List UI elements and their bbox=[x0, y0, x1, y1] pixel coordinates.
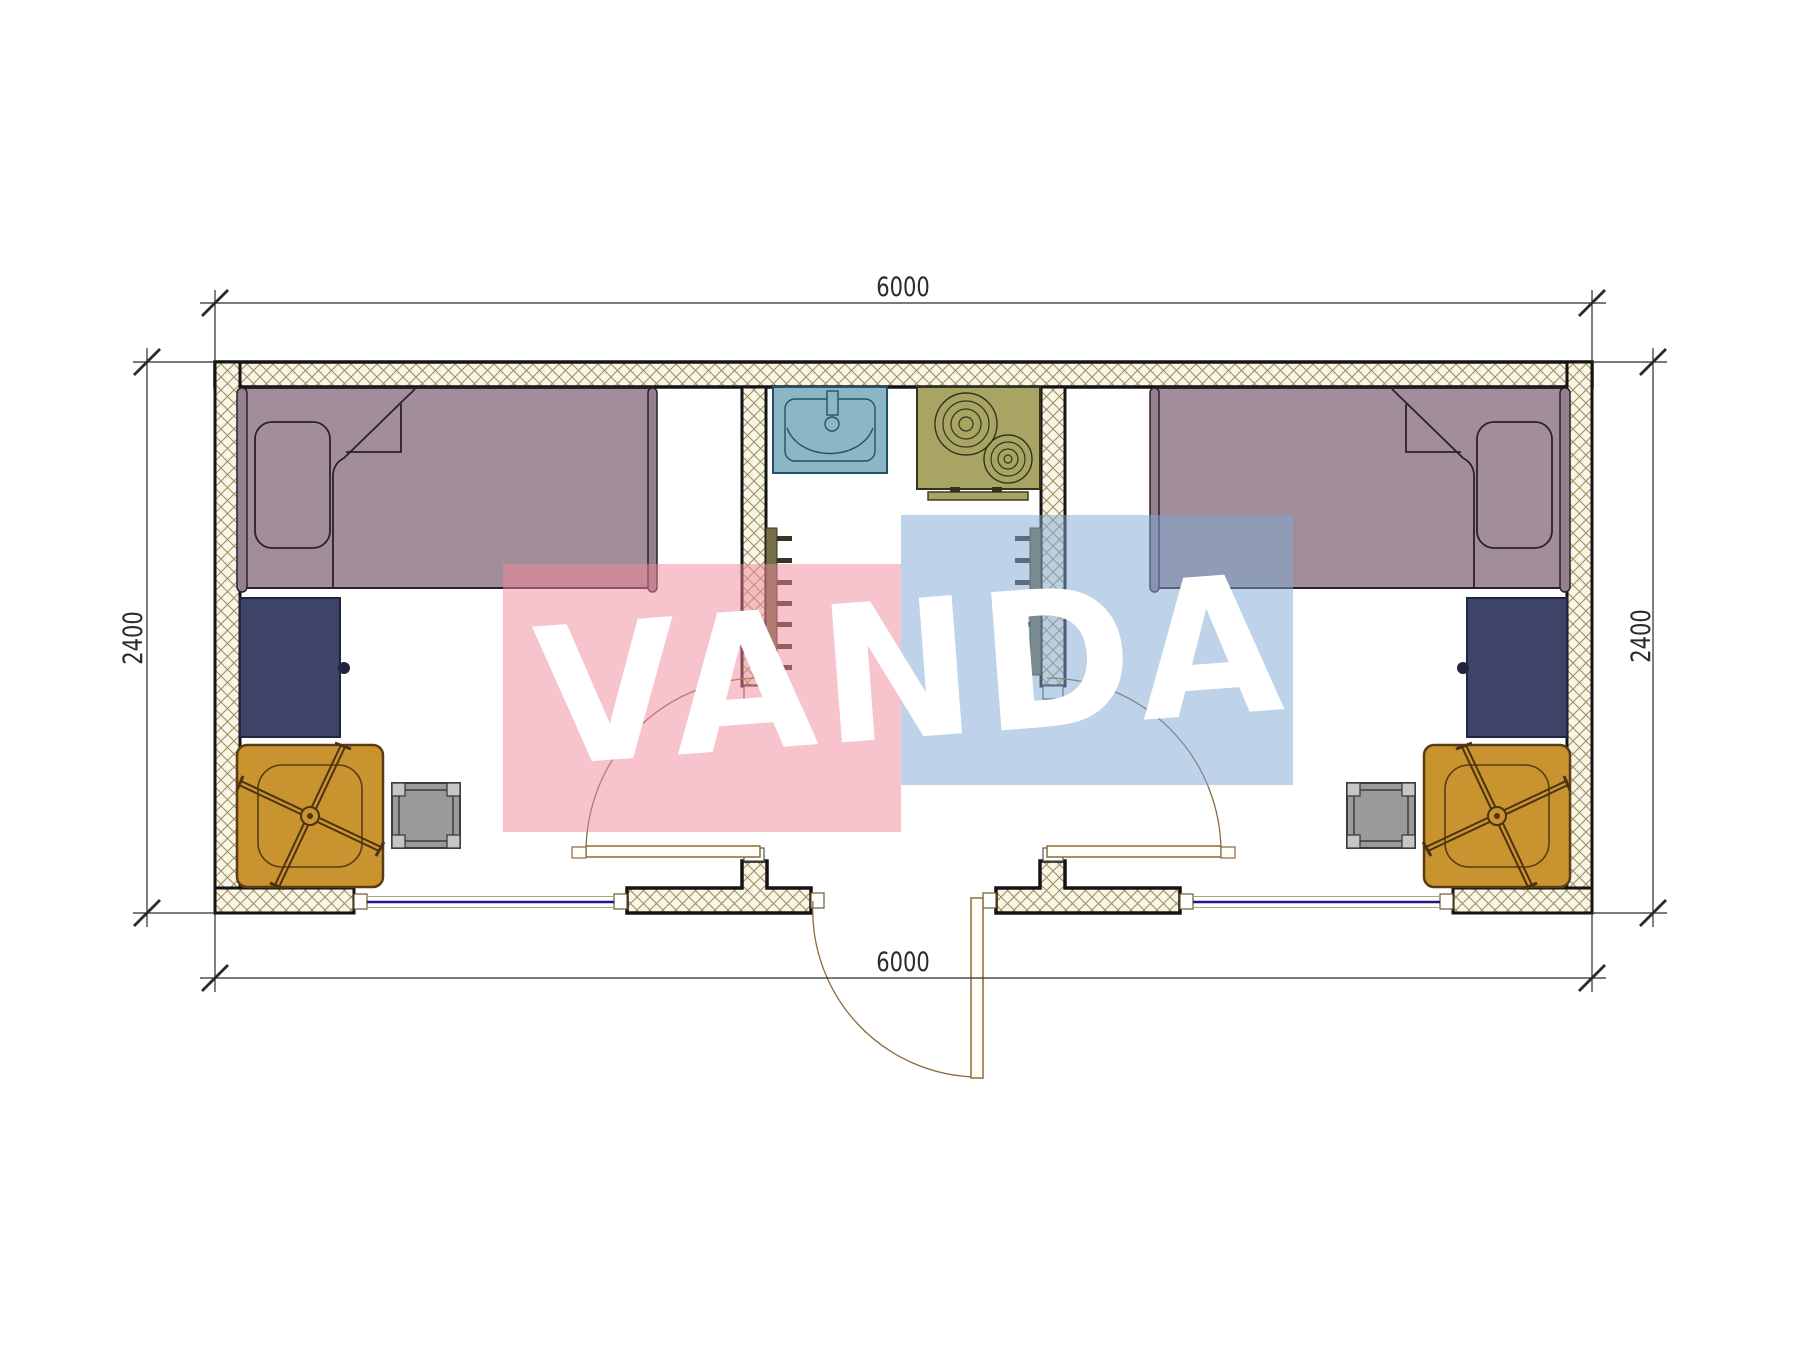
door-left-bedroom bbox=[572, 678, 760, 858]
wall-top bbox=[215, 362, 1592, 387]
stool-left bbox=[392, 783, 460, 848]
office-chair-left bbox=[237, 743, 384, 889]
stove bbox=[917, 387, 1040, 500]
office-chair-right bbox=[1423, 743, 1570, 889]
door-right-bedroom bbox=[1047, 678, 1235, 858]
stool-right bbox=[1347, 783, 1415, 848]
dimension-label-left: 2400 bbox=[120, 599, 148, 677]
desk-left bbox=[240, 598, 350, 737]
door-entrance bbox=[813, 898, 983, 1078]
desk-right bbox=[1457, 598, 1567, 737]
wall-bottom-right bbox=[1440, 888, 1592, 913]
window-left bbox=[367, 897, 614, 908]
dimension-label-bottom: 6000 bbox=[864, 949, 942, 977]
faucet-icon bbox=[827, 391, 838, 415]
bed-left bbox=[237, 388, 657, 592]
floor-plan-drawing bbox=[0, 0, 1800, 1350]
wall-bottom-left bbox=[215, 888, 367, 913]
bed-right bbox=[1150, 388, 1570, 592]
window-right bbox=[1193, 897, 1440, 908]
dimension-label-top: 6000 bbox=[864, 274, 942, 302]
dimension-label-right: 2400 bbox=[1628, 597, 1656, 675]
sink bbox=[773, 387, 887, 473]
floor-plan-page: VANDA 6000 6000 2400 2400 bbox=[0, 0, 1800, 1350]
